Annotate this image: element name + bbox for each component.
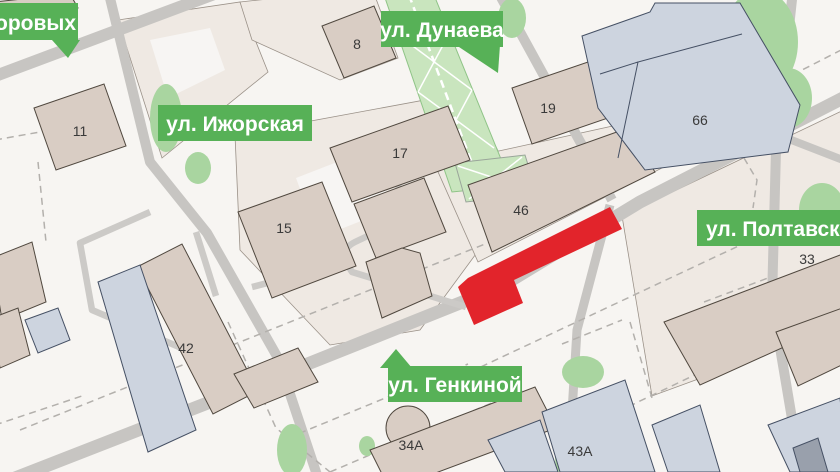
building-number: 15 — [276, 220, 292, 236]
building-number: 43А — [568, 443, 594, 459]
street-label-text: ул. Дунаева — [380, 19, 504, 42]
label-pointer — [380, 349, 412, 368]
building-number: 42 — [178, 340, 194, 356]
map: 8 11 19 17 66 15 46 33 42 34А 43А воровы… — [0, 0, 840, 472]
building-number: 8 — [353, 36, 361, 52]
dashed-line — [562, 320, 622, 344]
street-label-text: ул. Полтавская — [706, 218, 840, 241]
building-number: 66 — [692, 112, 708, 128]
building-number: 17 — [392, 145, 408, 161]
building-number: 46 — [513, 202, 529, 218]
tree — [562, 356, 604, 388]
building — [25, 308, 70, 353]
map-canvas: 8 11 19 17 66 15 46 33 42 34А 43А воровы… — [0, 0, 840, 472]
building — [0, 308, 30, 368]
street-label-genkinoy: ул. Генкиной — [380, 349, 522, 402]
building-number: 19 — [540, 100, 556, 116]
building-number: 33 — [799, 251, 815, 267]
building — [0, 242, 46, 320]
street-label-izhorskaya: ул. Ижорская — [158, 105, 312, 141]
building — [234, 348, 318, 408]
dashed-line — [38, 162, 46, 242]
street-label-text: воровых — [0, 12, 76, 35]
street-label-suvorovykh: воровых — [0, 3, 80, 58]
street-label-text: ул. Ижорская — [166, 113, 304, 136]
tree — [185, 152, 211, 184]
building-number: 34А — [399, 437, 425, 453]
building-43a — [542, 380, 655, 472]
street-label-text: ул. Генкиной — [388, 374, 521, 397]
street-label-poltavskaya: ул. Полтавская — [697, 210, 840, 246]
building-number: 11 — [73, 123, 88, 139]
building — [652, 405, 720, 472]
